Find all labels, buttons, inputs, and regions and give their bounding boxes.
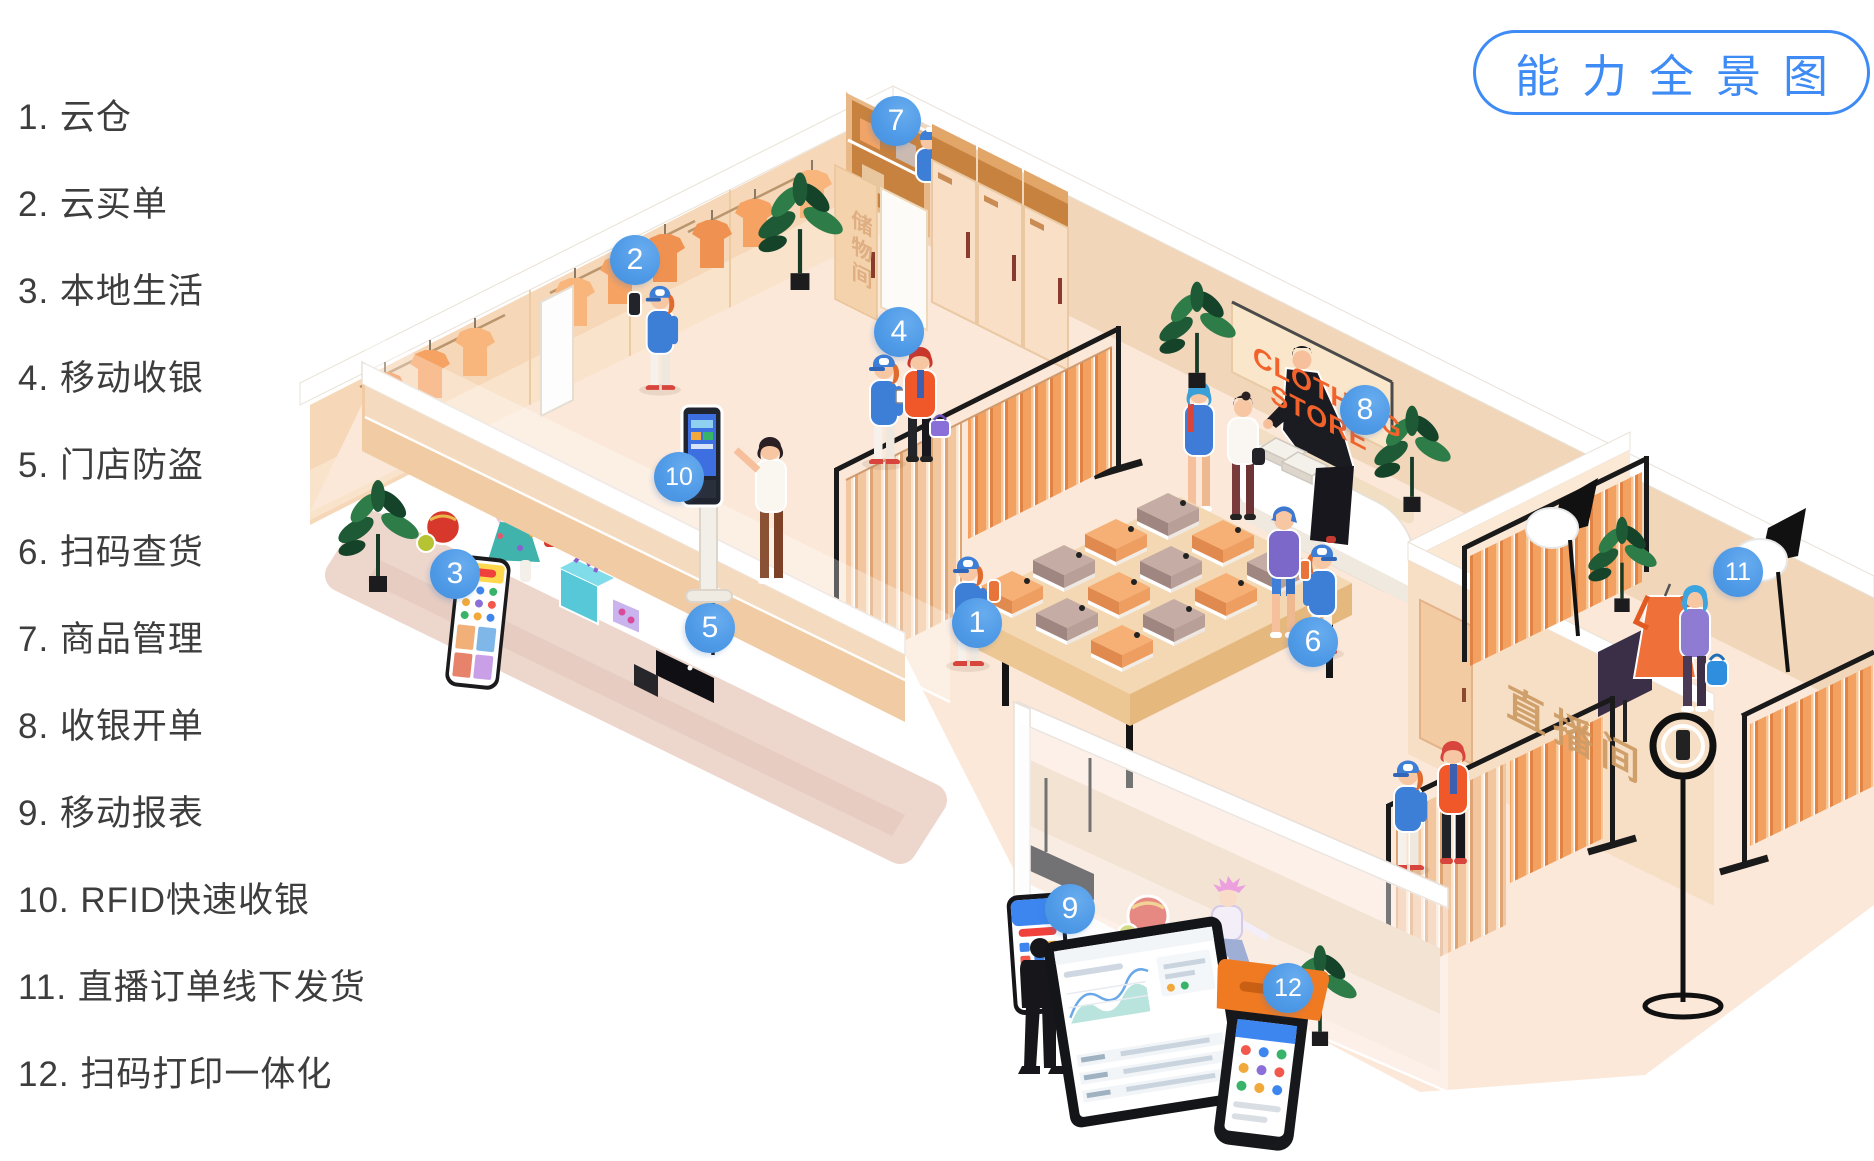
marker-7: 7 <box>871 96 921 146</box>
marker-8: 8 <box>1340 385 1390 435</box>
marker-9: 9 <box>1045 884 1095 934</box>
marker-11: 11 <box>1713 547 1763 597</box>
marker-2: 2 <box>610 235 660 285</box>
marker-3: 3 <box>430 549 480 599</box>
marker-10: 10 <box>654 452 704 502</box>
miniapp-phone-layer <box>0 0 1874 1161</box>
capability-panorama: 1. 云仓 2. 云买单 3. 本地生活 4. 移动收银 5. 门店防盗 6. … <box>0 0 1874 1161</box>
marker-5: 5 <box>685 603 735 653</box>
marker-6: 6 <box>1288 617 1338 667</box>
marker-1: 1 <box>952 598 1002 648</box>
marker-12: 12 <box>1263 963 1313 1013</box>
marker-4: 4 <box>874 307 924 357</box>
